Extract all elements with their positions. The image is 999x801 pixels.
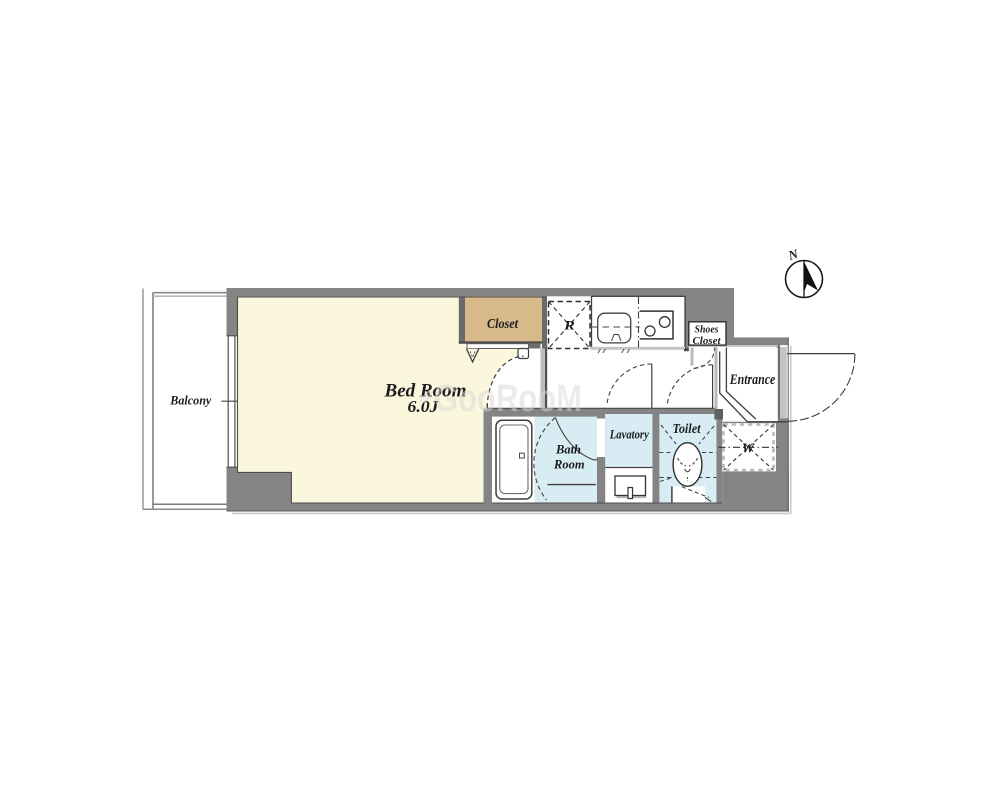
svg-text:Closet: Closet [693, 336, 722, 347]
svg-text:Bath: Bath [555, 443, 581, 457]
svg-text:Entrance: Entrance [729, 372, 776, 388]
svg-text:Shoes: Shoes [695, 325, 719, 336]
svg-text:Toilet: Toilet [673, 421, 702, 436]
svg-text:R: R [563, 318, 575, 333]
svg-text:Closet: Closet [487, 317, 519, 332]
svg-text:Balcony: Balcony [169, 393, 211, 408]
svg-text:W: W [742, 442, 756, 457]
svg-text:Lavatory: Lavatory [609, 427, 649, 442]
svg-text:Room: Room [553, 457, 585, 471]
svg-text:GooRooM: GooRooM [434, 378, 582, 420]
